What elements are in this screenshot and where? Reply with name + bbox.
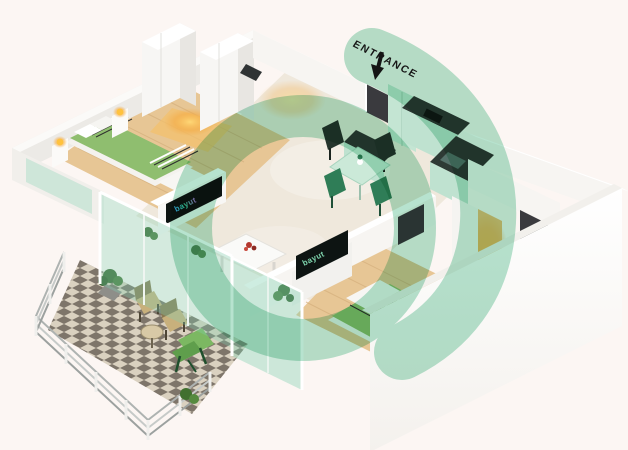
lamp-icon (117, 109, 124, 116)
floor-plan-page: bayut (0, 0, 628, 450)
floor-plan-3d-render: bayut (0, 0, 628, 450)
dining-vase (357, 159, 363, 165)
lamp-icon (57, 139, 64, 146)
